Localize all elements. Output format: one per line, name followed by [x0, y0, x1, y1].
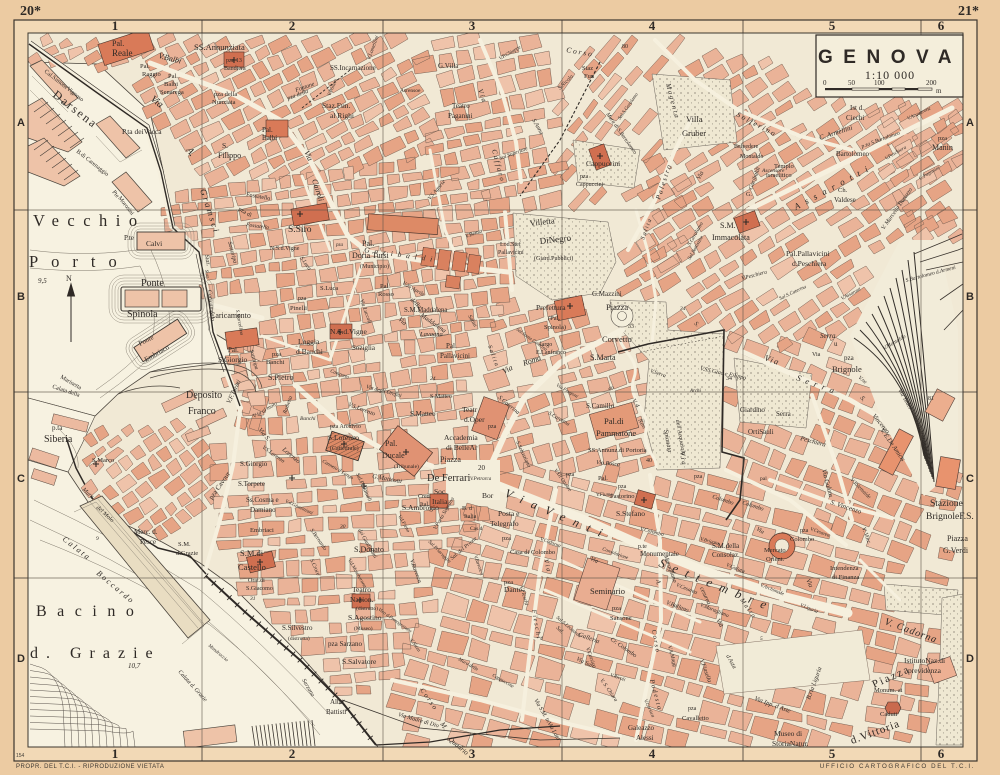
- svg-text:G.Verdi: G.Verdi: [943, 546, 969, 555]
- svg-text:d.Oper: d.Oper: [464, 415, 485, 424]
- svg-text:Ducale: Ducale: [382, 451, 405, 460]
- svg-text:Balbi: Balbi: [164, 81, 178, 88]
- svg-text:S.Stefano: S.Stefano: [616, 509, 645, 518]
- svg-text:PROPR. DEL T.C.I. - RIPRODUZIO: PROPR. DEL T.C.I. - RIPRODUZIONE VIETATA: [16, 764, 164, 770]
- svg-text:pal: pal: [760, 476, 767, 482]
- svg-text:(Giard.Pubblici): (Giard.Pubblici): [534, 255, 573, 262]
- svg-text:34: 34: [679, 305, 686, 312]
- svg-text:Battisti: Battisti: [326, 708, 346, 716]
- svg-text:9,5: 9,5: [38, 277, 47, 285]
- svg-text:Pal.: Pal.: [228, 346, 239, 354]
- svg-text:SS.Annunziata: SS.Annunziata: [194, 42, 245, 52]
- svg-text:Damiano: Damiano: [250, 506, 276, 514]
- svg-text:Alessi: Alessi: [636, 734, 654, 742]
- svg-text:Manin: Manin: [932, 143, 953, 152]
- svg-text:pza: pza: [272, 351, 281, 358]
- svg-text:(Municipio): (Municipio): [360, 263, 389, 270]
- svg-text:Bartolomeo: Bartolomeo: [836, 150, 870, 158]
- svg-text:Pal.: Pal.: [112, 39, 124, 48]
- svg-text:Sansone: Sansone: [610, 615, 632, 622]
- svg-text:31: 31: [249, 596, 256, 602]
- svg-text:S.M.: S.M.: [720, 221, 736, 230]
- svg-text:Cappuccini: Cappuccini: [586, 159, 620, 168]
- svg-text:200: 200: [926, 79, 937, 87]
- svg-text:Nazion.: Nazion.: [350, 595, 374, 604]
- svg-text:Loggia: Loggia: [298, 337, 320, 346]
- svg-text:Gruber: Gruber: [682, 128, 706, 138]
- svg-text:N.S.d.Vigne: N.S.d.Vigne: [270, 246, 300, 252]
- svg-text:Merc. d.: Merc. d.: [134, 528, 158, 536]
- svg-text:OrtiSauli: OrtiSauli: [748, 428, 774, 436]
- svg-text:S.M.: S.M.: [178, 541, 191, 548]
- svg-text:B: B: [966, 291, 974, 303]
- svg-text:Pal.: Pal.: [140, 63, 150, 70]
- svg-text:Accademia: Accademia: [444, 433, 478, 442]
- svg-text:d.Banchi: d.Banchi: [296, 347, 323, 356]
- svg-text:Pal.Pallavicini: Pal.Pallavicini: [786, 249, 830, 258]
- svg-text:UFFICIO CARTOGRAFICO DEL T.C.I: UFFICIO CARTOGRAFICO DEL T.C.I.: [820, 763, 975, 770]
- svg-text:3: 3: [469, 18, 476, 33]
- svg-text:Alb.: Alb.: [330, 698, 343, 706]
- svg-text:(Museo): (Museo): [354, 625, 373, 632]
- svg-text:al Righi: al Righi: [330, 111, 354, 120]
- svg-text:pza: pza: [800, 528, 809, 534]
- svg-text:Castello: Castello: [238, 562, 266, 572]
- svg-text:Archi: Archi: [689, 389, 702, 394]
- svg-text:5: 5: [760, 636, 763, 642]
- svg-text:Intendenza: Intendenza: [830, 565, 859, 572]
- svg-text:30: 30: [339, 524, 346, 530]
- svg-text:Franco: Franco: [188, 406, 216, 417]
- svg-text:1: 1: [112, 746, 119, 761]
- svg-text:Bandiera: Bandiera: [224, 66, 246, 72]
- svg-text:Ss.Cosma e: Ss.Cosma e: [246, 496, 279, 504]
- svg-text:A: A: [966, 117, 974, 129]
- svg-text:40: 40: [608, 385, 614, 392]
- svg-text:pza: pza: [612, 605, 621, 612]
- svg-text:Ciechi: Ciechi: [846, 114, 864, 122]
- svg-text:Villa: Villa: [686, 114, 703, 124]
- svg-text:pza: pza: [618, 484, 627, 490]
- svg-text:Seminario: Seminario: [590, 586, 625, 596]
- svg-text:5: 5: [829, 18, 836, 33]
- svg-text:De Ferrari: De Ferrari: [427, 473, 471, 484]
- svg-text:Brignole: Brignole: [832, 364, 862, 374]
- svg-text:0: 0: [823, 79, 827, 87]
- svg-text:Mercato: Mercato: [764, 547, 786, 554]
- svg-text:Banchi: Banchi: [300, 416, 316, 422]
- svg-text:6: 6: [938, 746, 945, 761]
- svg-text:Teatro: Teatro: [452, 102, 470, 110]
- svg-text:Prefettura: Prefettura: [536, 303, 566, 312]
- svg-text:40: 40: [646, 458, 652, 464]
- svg-text:Balbi: Balbi: [262, 134, 277, 142]
- svg-text:(Cattedrale): (Cattedrale): [330, 445, 359, 452]
- svg-text:pza: pza: [335, 243, 343, 248]
- svg-text:Pal.: Pal.: [446, 342, 457, 350]
- svg-text:Colombo: Colombo: [790, 536, 814, 543]
- svg-text:V.Fiume: V.Fiume: [596, 493, 613, 498]
- svg-text:50: 50: [848, 79, 856, 87]
- svg-text:2: 2: [289, 18, 296, 33]
- svg-text:Nunziata: Nunziata: [212, 99, 236, 106]
- svg-text:Posta e: Posta e: [498, 509, 520, 518]
- svg-text:21*: 21*: [958, 4, 979, 19]
- svg-text:Ascensore: Ascensore: [761, 168, 785, 174]
- svg-text:G.Mazzini: G.Mazzini: [592, 290, 622, 298]
- svg-text:100: 100: [874, 79, 885, 87]
- svg-text:Corvetto: Corvetto: [602, 334, 632, 344]
- svg-text:pza: pza: [694, 474, 703, 480]
- svg-text:D: D: [966, 653, 974, 665]
- svg-text:80: 80: [622, 44, 628, 50]
- svg-text:S.Torpete: S.Torpete: [238, 480, 265, 488]
- svg-text:pza: pza: [502, 535, 511, 542]
- svg-text:IstitutoNaz.di: IstitutoNaz.di: [904, 656, 945, 665]
- svg-text:S.Siro: S.Siro: [288, 225, 312, 235]
- svg-text:S.Giorgio: S.Giorgio: [240, 460, 268, 468]
- svg-text:Museo di: Museo di: [774, 729, 802, 738]
- svg-text:S.M.Maddalena: S.M.Maddalena: [404, 307, 447, 314]
- svg-text:u: u: [834, 340, 838, 348]
- svg-text:Pesce: Pesce: [140, 538, 156, 546]
- svg-text:d.Grazie: d.Grazie: [176, 550, 198, 557]
- svg-text:Italia: Italia: [464, 514, 477, 520]
- svg-text:20*: 20*: [20, 4, 41, 19]
- svg-text:C: C: [966, 473, 974, 485]
- svg-text:4: 4: [649, 18, 656, 33]
- svg-text:d. Grazie: d. Grazie: [30, 645, 161, 662]
- svg-text:9: 9: [96, 536, 99, 542]
- svg-text:1:10 000: 1:10 000: [865, 68, 915, 82]
- svg-text:Cred.: Cred.: [418, 494, 432, 500]
- svg-text:1: 1: [112, 18, 119, 33]
- svg-text:Pal.: Pal.: [380, 283, 390, 290]
- svg-text:5: 5: [829, 746, 836, 761]
- svg-text:Pal.: Pal.: [385, 439, 397, 448]
- svg-text:Serra: Serra: [820, 332, 836, 340]
- svg-text:SS.Annunz.di Portoria: SS.Annunz.di Portoria: [588, 447, 647, 454]
- svg-text:Ch.: Ch.: [838, 187, 848, 194]
- svg-text:3: 3: [469, 746, 476, 761]
- svg-text:S.Giacomo: S.Giacomo: [246, 586, 273, 592]
- svg-text:4: 4: [540, 635, 543, 642]
- svg-text:Stazione: Stazione: [930, 499, 963, 509]
- svg-text:Cavalletto: Cavalletto: [682, 715, 709, 722]
- svg-text:Rosso: Rosso: [378, 291, 394, 298]
- svg-text:D: D: [17, 653, 25, 665]
- svg-text:Piazza: Piazza: [606, 302, 628, 312]
- svg-text:Bacino: Bacino: [36, 603, 144, 620]
- svg-text:Staz.Fun.: Staz.Fun.: [322, 101, 350, 110]
- svg-text:S.Giorgio: S.Giorgio: [218, 355, 247, 364]
- svg-text:S.Lorenzo: S.Lorenzo: [328, 433, 359, 442]
- svg-text:Paganini: Paganini: [448, 112, 473, 120]
- svg-text:B. d: B. d: [462, 506, 472, 512]
- svg-text:S.Marco: S.Marco: [92, 457, 114, 464]
- svg-text:S.Marta: S.Marta: [590, 353, 616, 362]
- svg-text:P.ta deiVacca: P.ta deiVacca: [122, 127, 162, 136]
- svg-text:Filippo: Filippo: [218, 151, 241, 160]
- svg-text:StoriaNatur.: StoriaNatur.: [772, 739, 809, 748]
- svg-text:S.Luca: S.Luca: [320, 285, 338, 292]
- svg-text:6: 6: [938, 18, 945, 33]
- svg-text:Ital.: Ital.: [420, 502, 430, 508]
- svg-text:Fun: Fun: [584, 73, 595, 80]
- svg-text:B: B: [17, 291, 25, 303]
- svg-text:Montaldo: Montaldo: [740, 154, 763, 160]
- svg-text:Pallavicini: Pallavicini: [440, 352, 470, 360]
- svg-text:pza: pza: [580, 174, 589, 180]
- svg-text:pza 13: pza 13: [226, 58, 242, 64]
- svg-text:Immacolata: Immacolata: [712, 233, 750, 242]
- svg-text:S.Matteo: S.Matteo: [430, 394, 452, 400]
- svg-text:Spinola: Spinola: [127, 309, 158, 320]
- svg-text:20: 20: [478, 464, 486, 472]
- svg-text:S.Silvestro: S.Silvestro: [282, 624, 313, 632]
- svg-text:Ponte: Ponte: [141, 278, 164, 289]
- svg-text:pza: pza: [488, 424, 497, 430]
- svg-text:Lavagna: Lavagna: [419, 331, 443, 338]
- svg-text:4: 4: [649, 746, 656, 761]
- svg-text:Casa di Colombo: Casa di Colombo: [510, 549, 555, 556]
- svg-text:33: 33: [628, 324, 634, 330]
- svg-text:p.te: p.te: [638, 544, 647, 550]
- svg-text:S.Salvatore: S.Salvatore: [342, 657, 377, 666]
- svg-text:Via: Via: [812, 352, 821, 358]
- svg-text:S.Camillo: S.Camillo: [586, 402, 615, 410]
- svg-text:Monumentale: Monumentale: [640, 550, 679, 558]
- svg-text:Caduti: Caduti: [880, 711, 898, 718]
- svg-text:Pal.: Pal.: [168, 73, 178, 80]
- svg-text:S.: S.: [222, 141, 228, 150]
- svg-text:Giardino: Giardino: [740, 406, 765, 414]
- svg-text:Staz: Staz: [582, 65, 593, 72]
- svg-text:pza della: pza della: [214, 91, 237, 98]
- svg-text:Spinola): Spinola): [544, 324, 566, 331]
- svg-text:A: A: [17, 117, 25, 129]
- svg-text:SS.Incarnazione: SS.Incarnazione: [330, 64, 376, 72]
- svg-text:Caricamento: Caricamento: [210, 311, 251, 320]
- svg-text:Lod.Stef: Lod.Stef: [500, 241, 521, 248]
- svg-text:N.S.d.Vigne: N.S.d.Vigne: [330, 327, 368, 336]
- svg-text:previdenza: previdenza: [908, 666, 942, 675]
- svg-text:di BelleAr: di BelleAr: [446, 443, 478, 452]
- svg-text:N: N: [66, 274, 72, 283]
- svg-text:S.M.di: S.M.di: [240, 548, 264, 558]
- svg-text:Porto: Porto: [29, 252, 130, 271]
- svg-text:GENOVA: GENOVA: [818, 47, 962, 68]
- svg-text:81: 81: [928, 396, 934, 402]
- svg-text:Pastorino: Pastorino: [610, 493, 635, 500]
- svg-text:Serra: Serra: [776, 410, 792, 418]
- svg-text:G.Villa: G.Villa: [438, 62, 459, 70]
- svg-text:Pal.di: Pal.di: [604, 416, 624, 426]
- svg-text:Siberia: Siberia: [44, 434, 73, 445]
- svg-text:E.Lanfranco: E.Lanfranco: [536, 349, 566, 356]
- svg-text:pza: pza: [566, 472, 575, 478]
- svg-text:Telegrafo: Telegrafo: [490, 519, 519, 528]
- svg-text:Cappuccini: Cappuccini: [576, 182, 604, 188]
- svg-text:m: m: [936, 87, 942, 95]
- svg-text:(Pal.: (Pal.: [548, 315, 560, 322]
- svg-text:(distrutto): (distrutto): [356, 605, 378, 612]
- svg-text:Orient.: Orient.: [766, 556, 785, 563]
- svg-text:Soc.: Soc.: [434, 487, 447, 496]
- svg-text:Pal.: Pal.: [598, 475, 608, 482]
- svg-text:2: 2: [289, 746, 296, 761]
- svg-text:10,7: 10,7: [128, 662, 141, 670]
- svg-text:p.ta: p.ta: [52, 424, 63, 432]
- svg-text:Senarega: Senarega: [160, 89, 184, 96]
- svg-text:BrignoleF.S.: BrignoleF.S.: [926, 512, 974, 522]
- svg-text:34: 34: [726, 376, 732, 382]
- svg-text:Pinelli: Pinelli: [290, 305, 307, 312]
- svg-text:Pallavicini: Pallavicini: [498, 250, 524, 256]
- svg-text:P.te: P.te: [124, 234, 134, 242]
- svg-text:C: C: [17, 473, 25, 485]
- svg-text:pza Archivio: pza Archivio: [330, 424, 361, 430]
- svg-text:G.: G.: [746, 192, 752, 198]
- svg-text:Belvedere: Belvedere: [734, 144, 759, 150]
- svg-text:Galeazzo: Galeazzo: [628, 724, 655, 732]
- svg-text:V.Petrarca: V.Petrarca: [470, 477, 492, 482]
- svg-text:Pal.: Pal.: [262, 126, 273, 134]
- svg-text:pza: pza: [688, 706, 697, 712]
- svg-text:Consolaz.: Consolaz.: [712, 551, 740, 559]
- svg-text:Asrensoe: Asrensoe: [400, 88, 421, 94]
- svg-text:Pammatone: Pammatone: [596, 428, 636, 438]
- svg-text:Soziglia: Soziglia: [352, 344, 376, 352]
- svg-text:Teatr: Teatr: [462, 405, 478, 414]
- svg-text:Valdese: Valdese: [834, 196, 856, 204]
- svg-text:Banchi: Banchi: [266, 359, 285, 366]
- svg-text:Raggio: Raggio: [142, 71, 161, 78]
- svg-text:Calvi: Calvi: [146, 239, 162, 248]
- svg-text:Reale: Reale: [112, 48, 133, 58]
- svg-text:(distrutta): (distrutta): [288, 635, 310, 642]
- svg-text:Deposito: Deposito: [186, 390, 222, 401]
- svg-text:pza: pza: [938, 135, 947, 142]
- svg-text:Piazza: Piazza: [947, 534, 968, 543]
- svg-text:Bor: Bor: [482, 491, 494, 500]
- svg-text:pza: pza: [298, 296, 307, 302]
- svg-text:Ist d.: Ist d.: [850, 104, 864, 112]
- svg-text:Orat.di: Orat.di: [248, 578, 265, 584]
- svg-text:pza Sarzano: pza Sarzano: [328, 640, 363, 648]
- svg-text:154: 154: [16, 753, 25, 759]
- svg-text:pza: pza: [844, 354, 855, 362]
- svg-text:Embriaci: Embriaci: [250, 527, 274, 534]
- svg-text:S.Matteo: S.Matteo: [410, 410, 436, 418]
- svg-text:di Finanza: di Finanza: [832, 574, 859, 581]
- svg-text:(Tribunale): (Tribunale): [394, 463, 419, 470]
- svg-text:Cas.d: Cas.d: [470, 526, 483, 532]
- svg-text:S.Pietro: S.Pietro: [268, 373, 294, 382]
- svg-text:S.Agostino: S.Agostino: [348, 613, 382, 622]
- svg-text:Piazza: Piazza: [440, 455, 461, 464]
- svg-text:24: 24: [430, 375, 436, 382]
- svg-text:d.Peschiera: d.Peschiera: [792, 259, 827, 268]
